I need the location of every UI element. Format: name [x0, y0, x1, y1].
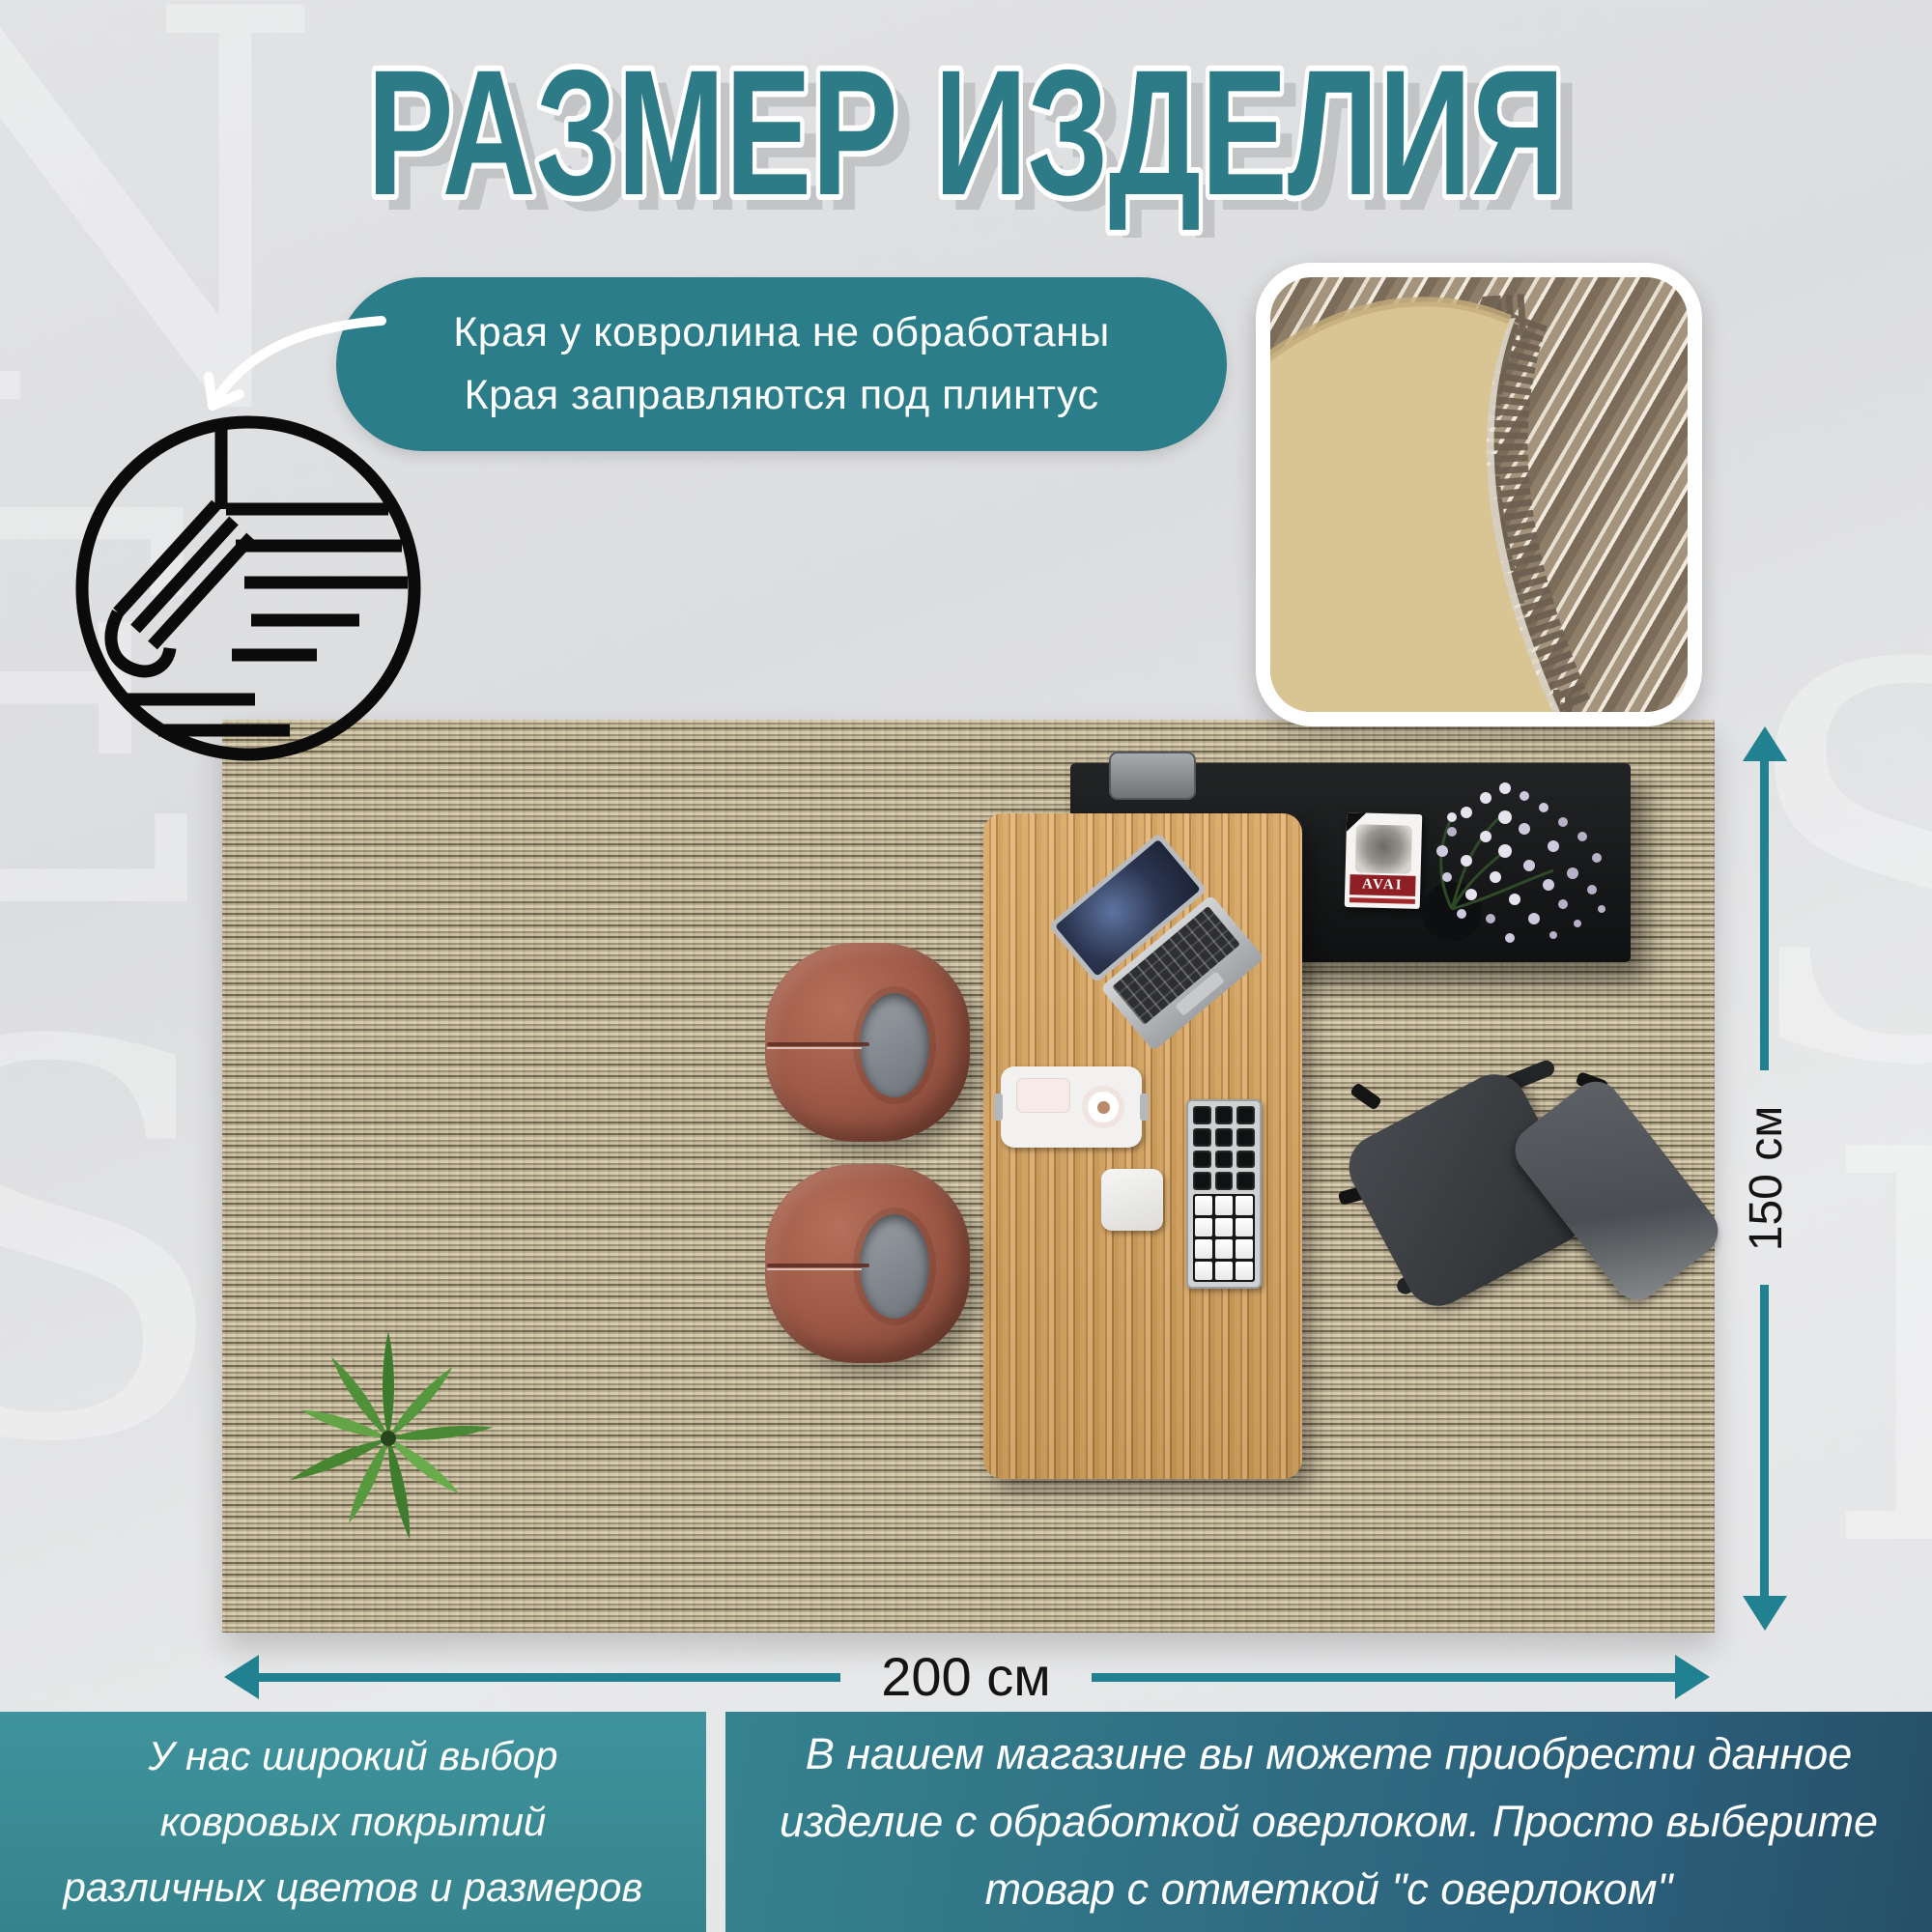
watermark-letter: S	[0, 976, 236, 1517]
footer-right-line: изделие с обработкой оверлоком. Просто в…	[780, 1797, 1878, 1847]
arrow-right-head	[1675, 1655, 1710, 1699]
height-dimension-label: 150 см	[1669, 1087, 1862, 1270]
tray-handle-right	[1140, 1094, 1149, 1121]
terracotta-armchair-top	[765, 943, 970, 1142]
footer-left-line: У нас широкий выбор	[149, 1733, 558, 1779]
white-square-box	[1101, 1169, 1163, 1231]
callout-line-1: Края у ковролина не обработаны	[453, 309, 1110, 356]
page-title-graphic: РАЗМЕР ИЗДЕЛИЯ РАЗМЕР ИЗДЕЛИЯ	[290, 35, 1642, 238]
arrow-down-head	[1743, 1596, 1787, 1631]
calculator-keypad	[1186, 1099, 1262, 1289]
width-dimension-label: 200 см	[840, 1644, 1092, 1708]
footer-left-line: различных цветов и размеров	[64, 1864, 643, 1911]
gray-device	[1109, 752, 1196, 800]
footer-panel-right: В нашем магазине вы можете приобрести да…	[725, 1712, 1932, 1932]
footer-panel-left: У нас широкий выбор ковровых покрытий ра…	[0, 1712, 706, 1932]
office-chair	[1343, 1070, 1676, 1307]
tray-box	[1016, 1078, 1070, 1113]
vertical-dimension-line	[1760, 1285, 1769, 1600]
flower-arrangement	[1360, 769, 1611, 974]
terracotta-armchair-bottom	[765, 1164, 970, 1363]
page-title: РАЗМЕР ИЗДЕЛИЯ	[367, 35, 1565, 233]
horizontal-dimension-line	[255, 1673, 840, 1682]
horizontal-dimension-line	[1092, 1673, 1679, 1682]
product-size-infographic: { "title": "РАЗМЕР ИЗДЕЛИЯ", "callout": …	[0, 0, 1932, 1932]
footer-right-line: товар с отметкой "с оверлоком"	[985, 1864, 1673, 1915]
plinth-baseboard-icon	[70, 410, 427, 767]
coffee-surface	[1097, 1101, 1110, 1114]
footer-right-line: В нашем магазине вы можете приобрести да…	[806, 1729, 1853, 1779]
carpet-backing-inset-photo	[1256, 263, 1702, 726]
footer-left-line: ковровых покрытий	[160, 1799, 547, 1845]
edges-callout-bubble: Края у ковролина не обработаны Края запр…	[336, 277, 1227, 451]
arrow-up-head	[1743, 726, 1787, 761]
arrow-left-head	[224, 1655, 259, 1699]
desk-tray	[1001, 1066, 1142, 1148]
tray-handle-left	[994, 1094, 1003, 1121]
vertical-dimension-line	[1760, 757, 1769, 1070]
palm-plant	[273, 1323, 503, 1553]
callout-line-2: Края заправляются под плинтус	[465, 372, 1099, 419]
